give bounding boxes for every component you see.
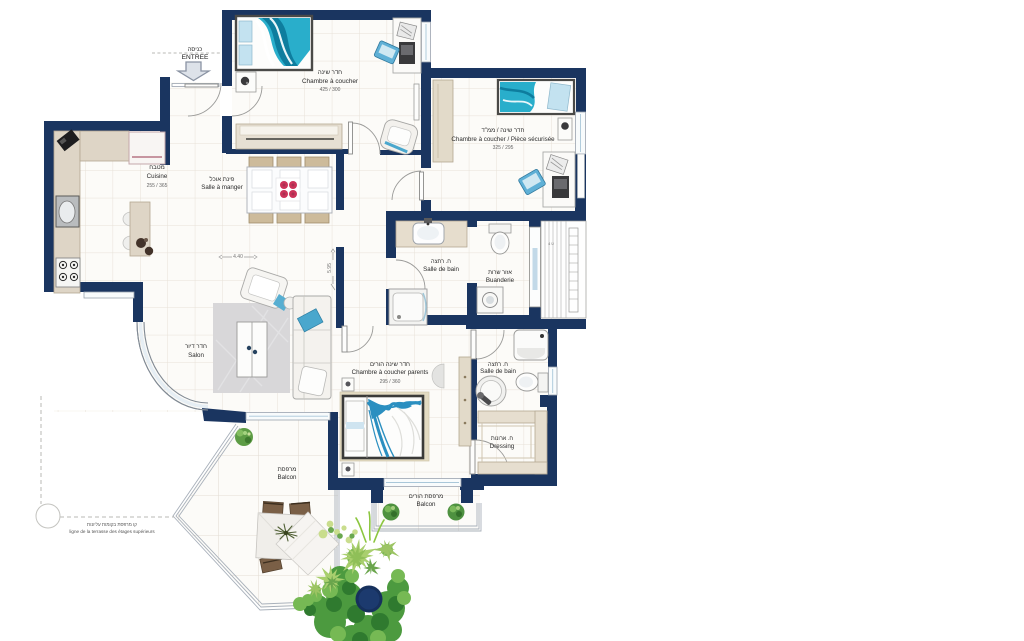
svg-text:פינת אוכל: פינת אוכל (210, 175, 235, 183)
svg-text:ligne de la terrasse des étage: ligne de la terrasse des étages supérieu… (69, 529, 155, 534)
svg-text:Chambre à coucher / Pièce sécu: Chambre à coucher / Pièce sécurisée (451, 136, 555, 143)
svg-text:425 / 300: 425 / 300 (320, 87, 341, 93)
svg-text:295 / 360: 295 / 360 (380, 379, 401, 385)
svg-text:כניסה: כניסה (188, 47, 203, 53)
svg-text:255 / 365: 255 / 365 (147, 183, 168, 189)
svg-text:Salle à manger: Salle à manger (201, 184, 243, 191)
svg-text:Salle de bain: Salle de bain (423, 266, 459, 273)
svg-text:קו מרפסת בקומות עליונות: קו מרפסת בקומות עליונות (87, 522, 137, 527)
svg-text:אזור שרות: אזור שרות (488, 270, 512, 276)
svg-text:Buanderie: Buanderie (486, 277, 515, 284)
svg-text:325 / 295: 325 / 295 (493, 145, 514, 151)
svg-text:מטבח: מטבח (149, 165, 165, 171)
svg-text:ח. ארונות: ח. ארונות (491, 436, 514, 442)
svg-text:Salle de bain: Salle de bain (480, 368, 516, 375)
svg-text:חדר שינה הורים: חדר שינה הורים (370, 362, 410, 368)
svg-text:Cuisine: Cuisine (147, 173, 168, 180)
svg-text:ח. רחצה: ח. רחצה (431, 259, 451, 265)
svg-text:חדר שינה / ממ"ד: חדר שינה / ממ"ד (482, 128, 525, 134)
svg-text:Balcon: Balcon (417, 501, 436, 508)
svg-text:Chambre à coucher: Chambre à coucher (302, 78, 359, 85)
svg-text:Balcon: Balcon (278, 474, 297, 481)
svg-text:Chambre à coucher parents: Chambre à coucher parents (352, 369, 429, 376)
svg-text:חדר שינה: חדר שינה (318, 70, 342, 76)
svg-text:מרפסת: מרפסת (278, 467, 297, 473)
svg-text:Dressing: Dressing (490, 443, 515, 450)
svg-text:4.40: 4.40 (233, 254, 243, 260)
svg-text:5.95: 5.95 (327, 263, 333, 273)
svg-text:מרפסת הורים: מרפסת הורים (409, 494, 444, 500)
svg-text:חדר דיור: חדר דיור (185, 344, 207, 350)
svg-text:4 ט: 4 ט (548, 242, 554, 246)
svg-text:Salon: Salon (188, 352, 204, 359)
svg-text:ENTREE: ENTREE (182, 54, 209, 61)
